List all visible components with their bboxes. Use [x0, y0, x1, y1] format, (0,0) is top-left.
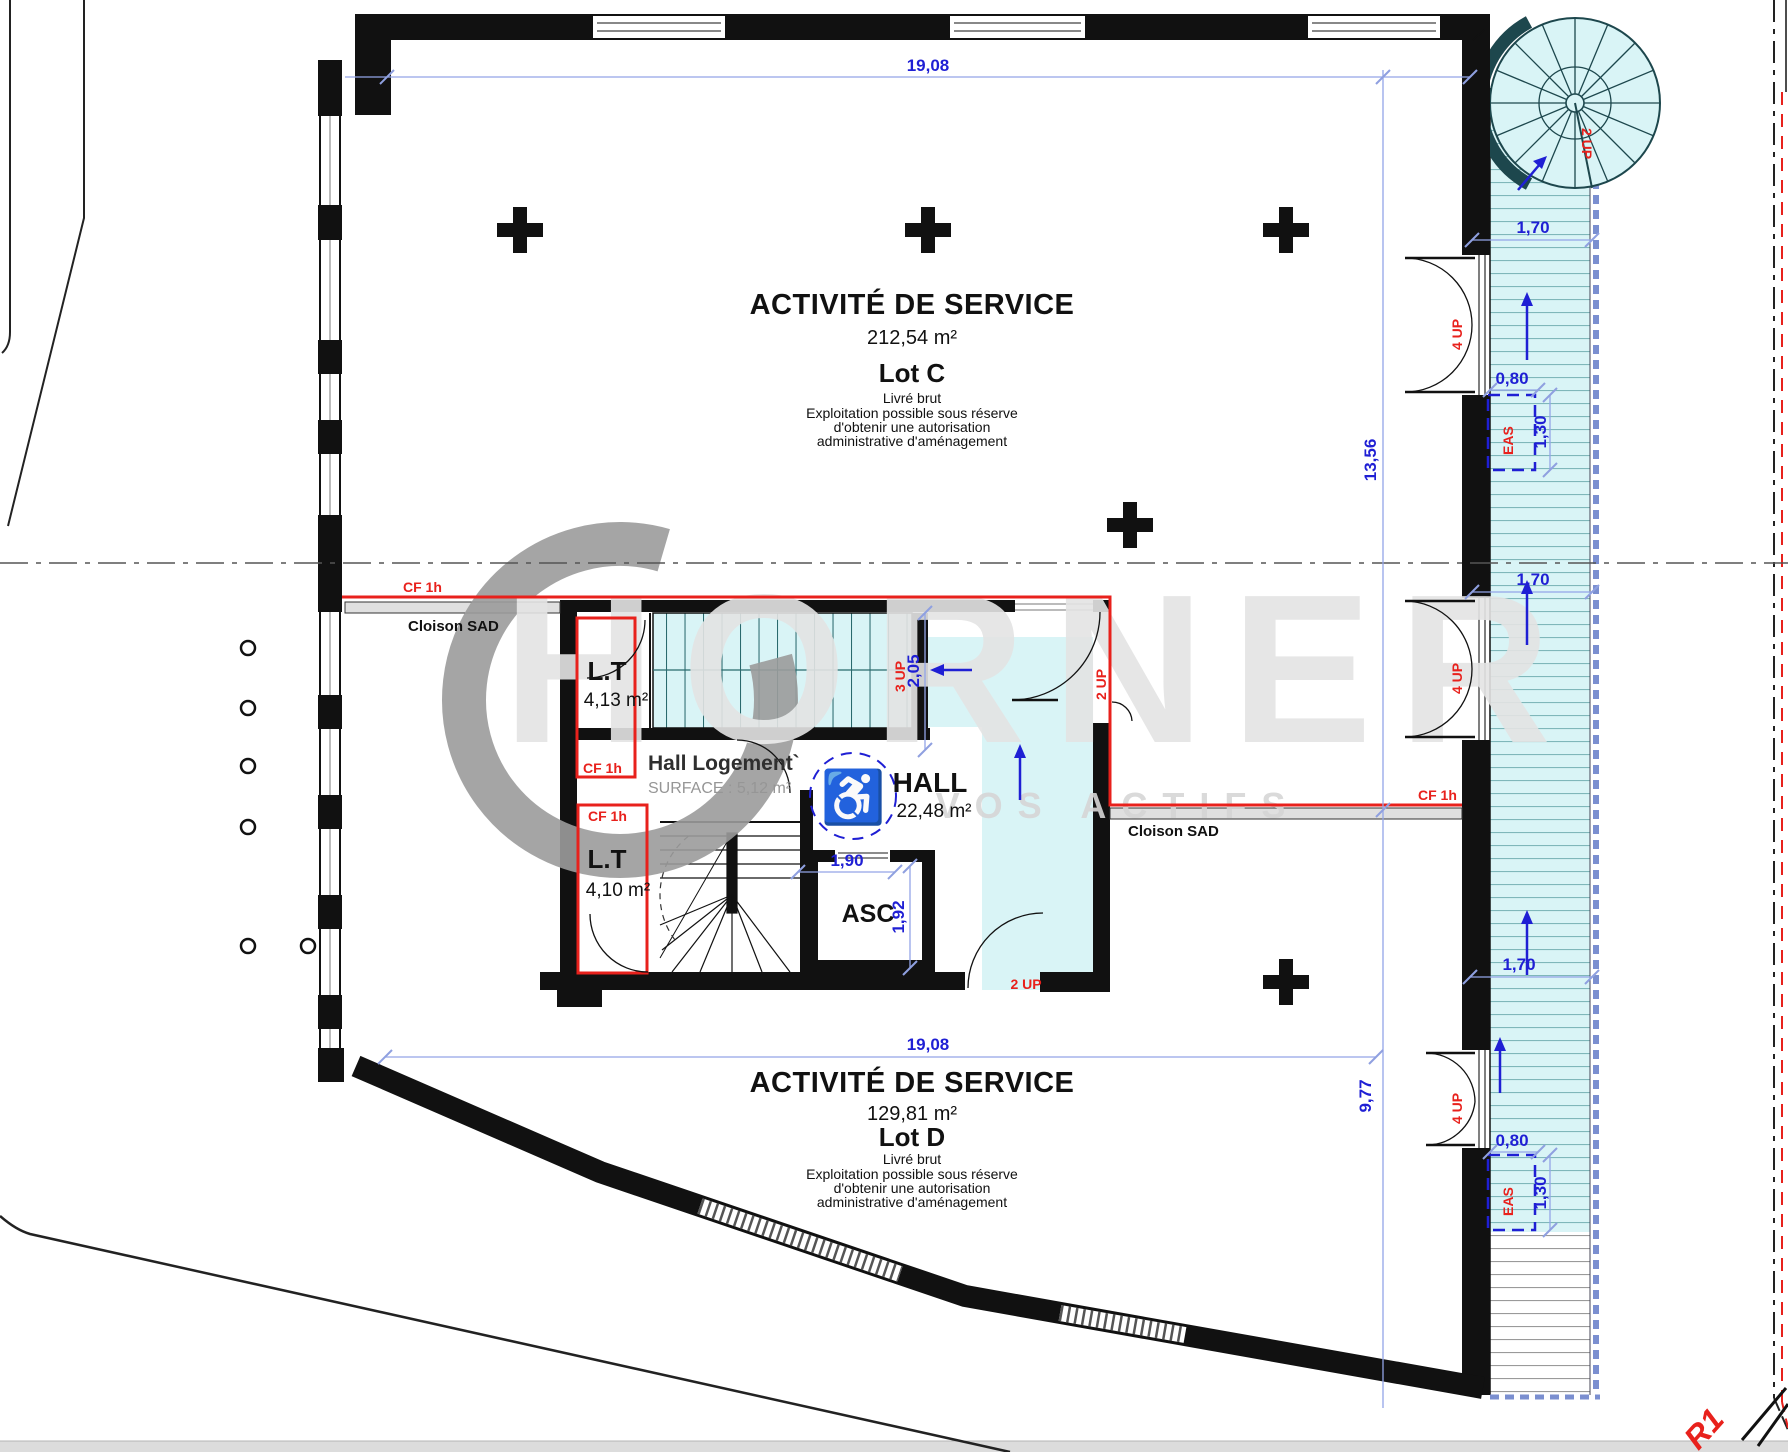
site-line-left-inner	[8, 0, 84, 526]
eas-bottom: EAS	[1500, 1187, 1516, 1216]
cf1h-left: CF 1h	[403, 579, 442, 595]
lot-d-block: ACTIVITÉ DE SERVICE 129,81 m² Lot D Livr…	[750, 1065, 1075, 1210]
cf1h-lt1: CF 1h	[583, 760, 622, 776]
hall-logement-surface: SURFACE : 5,12 m²	[648, 780, 792, 797]
lt2-label: L.T	[588, 844, 627, 874]
asc-label: ASC	[842, 900, 895, 928]
dim-1-70-bottom: 1,70	[1502, 955, 1535, 974]
lot-c-note1: Livré brut	[883, 390, 941, 406]
dim-1-30-top: 1,30	[1531, 415, 1550, 448]
dim-1-70-mid: 1,70	[1516, 570, 1549, 589]
lot-c-block: ACTIVITÉ DE SERVICE 212,54 m² Lot C Livr…	[750, 287, 1075, 449]
lot-d-name: Lot D	[879, 1122, 945, 1152]
svg-text:♿: ♿	[821, 767, 886, 827]
dim-1-70-top: 1,70	[1516, 218, 1549, 237]
dim-1-30-bottom: 1,30	[1531, 1176, 1550, 1209]
floor-plan-page: HORNER VOS ACTIFS	[0, 0, 1788, 1452]
top-wall-windows	[593, 16, 1440, 38]
cloison-sad-right: Cloison SAD	[1128, 823, 1219, 840]
eas-top: EAS	[1500, 426, 1516, 455]
up4-door2: 4 UP	[1449, 663, 1465, 694]
cf1h-right: CF 1h	[1418, 787, 1457, 803]
left-wall	[318, 60, 344, 1082]
spiral-stair	[1481, 18, 1660, 188]
dim-19-08-top: 19,08	[907, 56, 950, 75]
up2-hall-door: 2 UP	[1093, 669, 1109, 700]
lot-c-area: 212,54 m²	[867, 327, 957, 349]
bottom-strip	[0, 1441, 1788, 1452]
floor-plan-drawing: HORNER VOS ACTIFS	[0, 0, 1788, 1452]
dim-1-90: 1,90	[830, 851, 863, 870]
lot-d-note1: Livré brut	[883, 1151, 941, 1167]
dim-9-77: 9,77	[1356, 1079, 1375, 1112]
site-posts	[241, 641, 315, 953]
lot-c-title: ACTIVITÉ DE SERVICE	[750, 287, 1075, 321]
lt1-label: L.T	[588, 656, 627, 686]
dim-13-56: 13,56	[1361, 439, 1380, 482]
up4-door3: 4 UP	[1449, 1093, 1465, 1124]
site-line-left-outer	[2, 0, 10, 353]
lot-c-name: Lot C	[879, 358, 946, 388]
up4-door1: 4 UP	[1449, 319, 1465, 350]
dim-0-80-bottom: 0,80	[1495, 1131, 1528, 1150]
dim-2-05: 2,05	[904, 654, 923, 687]
lot-d-note4: administrative d'aménagement	[817, 1194, 1007, 1210]
up2-spiral: 2 UP	[1579, 128, 1595, 159]
lt2-area: 4,10 m²	[586, 880, 650, 901]
dim-19-08-bottom: 19,08	[907, 1035, 950, 1054]
hall-area: 22,48 m²	[897, 801, 972, 822]
hall-logement-label: Hall Logement`	[648, 752, 800, 775]
up2-hall-bottom: 2 UP	[1010, 976, 1041, 992]
cloison-sad-left: Cloison SAD	[408, 618, 499, 635]
dim-1-92: 1,92	[889, 900, 908, 933]
lt1-area: 4,13 m²	[584, 690, 648, 711]
lot-d-title: ACTIVITÉ DE SERVICE	[750, 1065, 1075, 1099]
hall-label: HALL	[893, 767, 968, 798]
cf1h-lt2: CF 1h	[588, 808, 627, 824]
dim-0-80-top: 0,80	[1495, 369, 1528, 388]
lot-c-note4: administrative d'aménagement	[817, 433, 1007, 449]
